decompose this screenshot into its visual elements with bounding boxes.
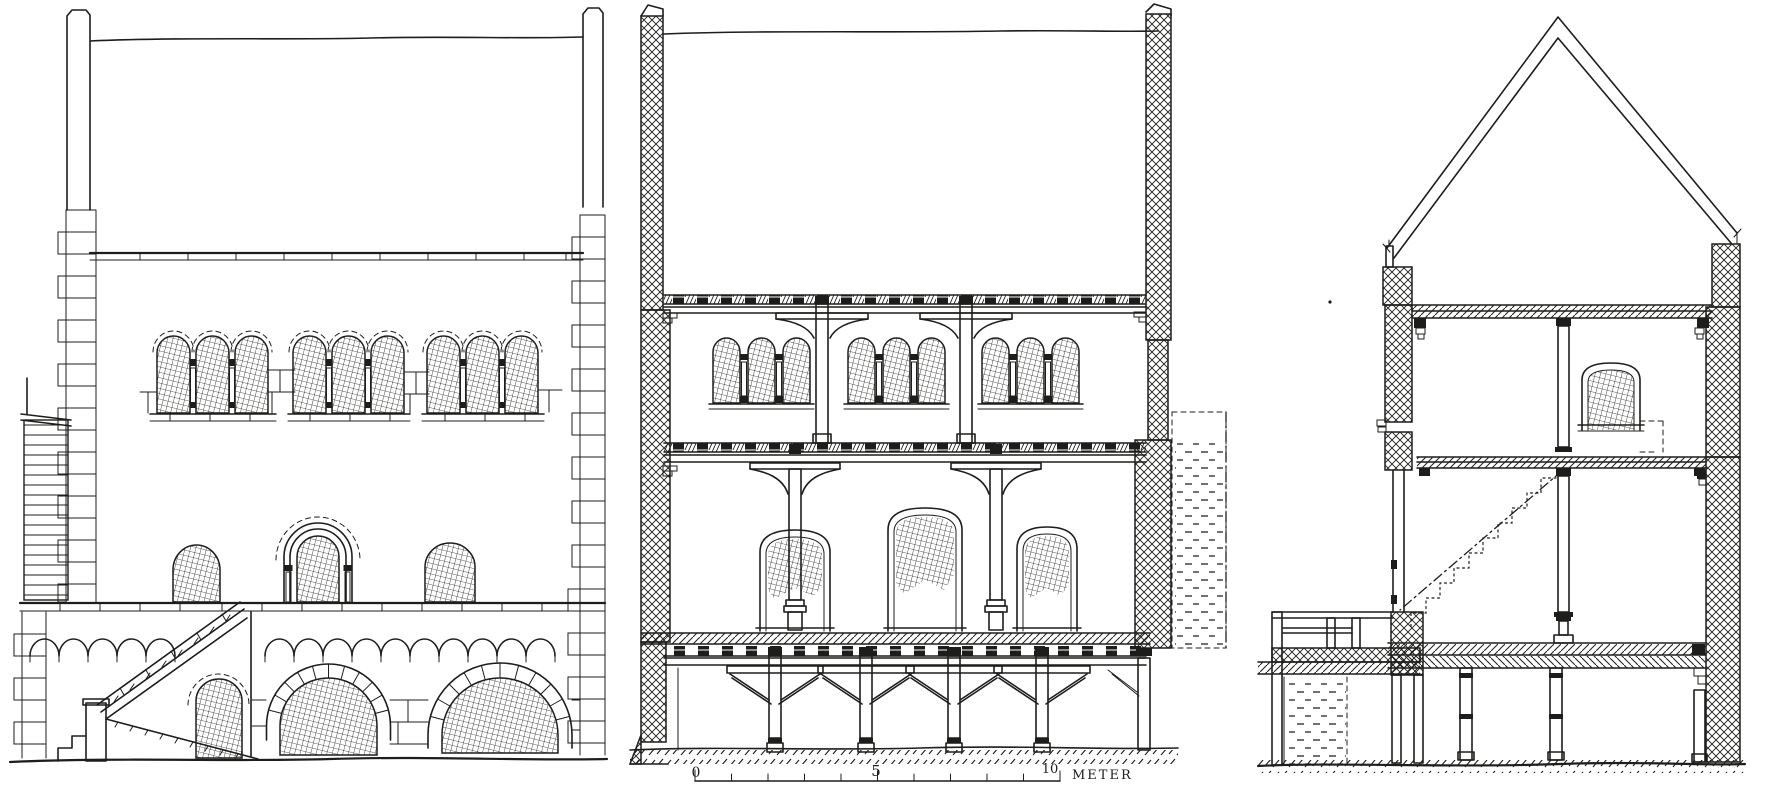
stair-steps-dotted bbox=[1411, 478, 1556, 628]
stair-steps bbox=[58, 736, 86, 761]
upper-floor-band bbox=[664, 295, 1146, 313]
central-portal bbox=[276, 517, 360, 602]
panel-front-elevation bbox=[10, 8, 607, 762]
first-floor-windows bbox=[173, 517, 475, 602]
gable-roof bbox=[1383, 17, 1741, 258]
great-arch-2 bbox=[428, 663, 572, 753]
ground-floor-window bbox=[188, 674, 249, 758]
arcade-window-groups bbox=[709, 338, 1083, 409]
panel-cross-section bbox=[1258, 17, 1745, 773]
panel-longitudinal-section: 0 5 10 METER bbox=[630, 4, 1226, 783]
scale-unit-label: METER bbox=[1072, 768, 1133, 783]
great-arch-1 bbox=[267, 664, 391, 755]
drawing-sheet: 0 5 10 METER bbox=[0, 0, 1777, 800]
eaves-line-mid bbox=[664, 31, 1158, 34]
window-right bbox=[425, 543, 475, 602]
main-floor-band bbox=[1388, 643, 1706, 668]
stair-stringer-dashdot bbox=[1400, 470, 1563, 610]
window-band-triple-groups bbox=[140, 331, 562, 421]
corbel-frieze bbox=[30, 639, 555, 662]
ground-line-mid bbox=[630, 747, 1178, 750]
right-pilaster bbox=[568, 8, 605, 755]
stair-railing-panel bbox=[24, 420, 68, 600]
drawing-canvas: 0 5 10 METER bbox=[0, 0, 1777, 800]
attic-storey bbox=[1555, 318, 1663, 452]
window-left bbox=[173, 545, 220, 602]
scale-label-5: 5 bbox=[871, 762, 881, 780]
stray-ink-dot bbox=[1328, 300, 1331, 303]
scale-label-0: 0 bbox=[692, 765, 701, 781]
scale-bar: 0 5 10 METER bbox=[692, 762, 1133, 783]
ground-floor-band bbox=[641, 633, 1150, 665]
middle-floor-band bbox=[664, 443, 1146, 462]
ground-storey-posts-right bbox=[1458, 668, 1707, 762]
newel-post bbox=[86, 703, 106, 761]
middle-storey bbox=[1400, 468, 1573, 643]
ground-storey-posts bbox=[727, 647, 1090, 752]
eaves-line bbox=[90, 37, 583, 41]
arched-niches bbox=[756, 508, 1081, 633]
scale-label-10: 10 bbox=[1042, 762, 1059, 777]
